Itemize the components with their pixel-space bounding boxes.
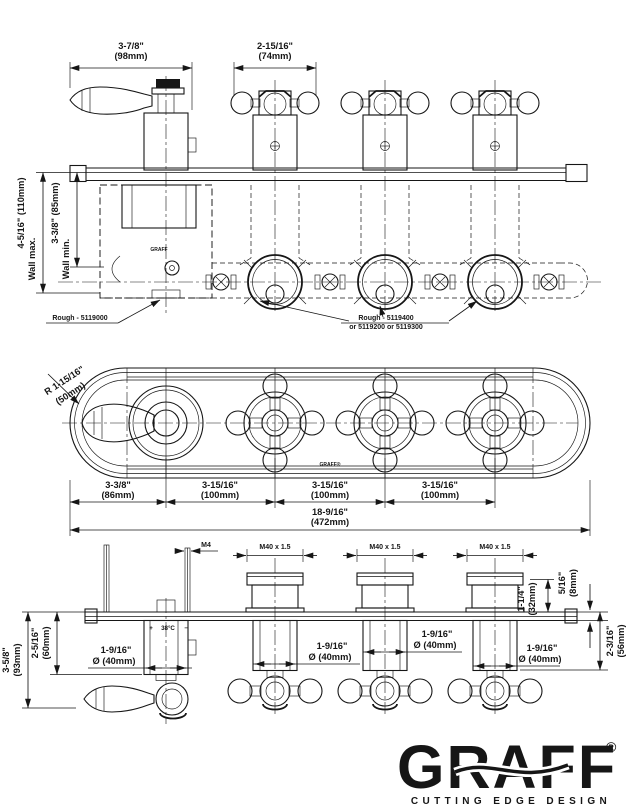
svg-text:Ø (40mm): Ø (40mm) — [414, 640, 457, 650]
svg-text:Ø (40mm): Ø (40mm) — [519, 654, 562, 664]
svg-text:1-9/16": 1-9/16" — [422, 629, 453, 639]
svg-text:(56mm): (56mm) — [616, 624, 626, 657]
plate-logo-text: GRAFF® — [320, 461, 341, 468]
thermostat-rough-body: GRAFF — [100, 185, 212, 298]
svg-text:Ø (40mm): Ø (40mm) — [93, 656, 136, 666]
svg-text:(100mm): (100mm) — [311, 490, 349, 500]
svg-text:Rough - 5119400: Rough - 5119400 — [358, 315, 413, 322]
svg-text:Wall min.: Wall min. — [61, 239, 71, 279]
svg-text:18-9/16": 18-9/16" — [312, 507, 348, 517]
front-view: GRAFF® R 1-15/16" (50mm) 3-3/8" — [43, 364, 590, 536]
top-view-wall-section: GRAFF 3-7/8" (98mm) 2-15/16" (74mm) 4-5/… — [16, 41, 602, 331]
svg-text:(60mm): (60mm) — [41, 626, 51, 659]
svg-text:2-5/16": 2-5/16" — [30, 628, 40, 659]
svg-text:(472mm): (472mm) — [311, 517, 349, 527]
registered-mark: ® — [606, 739, 617, 755]
svg-text:Ø (40mm): Ø (40mm) — [309, 652, 352, 662]
svg-text:1-9/16": 1-9/16" — [101, 645, 132, 655]
svg-text:(100mm): (100mm) — [421, 490, 459, 500]
svg-text:(98mm): (98mm) — [114, 51, 147, 61]
temp-value: 38°C — [161, 625, 175, 632]
thermostat-trim-bottom: + 38°C − — [84, 621, 196, 719]
svg-text:M40 x 1.5: M40 x 1.5 — [369, 544, 400, 551]
svg-text:M40 x 1.5: M40 x 1.5 — [479, 544, 510, 551]
svg-text:(32mm): (32mm) — [527, 582, 537, 615]
svg-text:Rough - 5119000: Rough - 5119000 — [52, 315, 107, 322]
svg-text:3-15/16": 3-15/16" — [422, 480, 458, 490]
svg-text:3-15/16": 3-15/16" — [202, 480, 238, 490]
svg-text:3-15/16": 3-15/16" — [312, 480, 348, 490]
svg-text:1-9/16": 1-9/16" — [527, 643, 558, 653]
svg-text:Wall max.: Wall max. — [27, 238, 37, 281]
svg-text:2-15/16": 2-15/16" — [257, 41, 293, 51]
callout-rough-right: Rough - 5119400 or 5119200 or 5119300 — [260, 301, 477, 331]
callout-rough-left: Rough - 5119000 — [46, 300, 160, 323]
brand-logo: GRAFF ® CUTTING EDGE DESIGN — [397, 733, 617, 807]
svg-text:1-1/4": 1-1/4" — [516, 586, 526, 612]
dim-stud-thread: M4 — [175, 542, 218, 551]
brand-tagline: CUTTING EDGE DESIGN — [411, 796, 611, 807]
svg-text:3-5/8": 3-5/8" — [1, 647, 11, 673]
svg-text:3-3/8": 3-3/8" — [105, 480, 131, 490]
svg-text:(74mm): (74mm) — [258, 51, 291, 61]
dim-volume2-escutcheon-dia: 1-9/16" Ø (40mm) — [363, 629, 462, 652]
svg-text:M4: M4 — [201, 542, 211, 549]
dim-wall-min: 3-3/8" (85mm) Wall min. — [50, 173, 104, 280]
dim-corner-radius: R 1-15/16" (50mm) — [43, 364, 87, 407]
temp-minus-mark: − — [184, 625, 188, 632]
svg-text:3-7/8": 3-7/8" — [118, 41, 144, 51]
mounting-studs — [104, 545, 190, 612]
dim-thermo-escutcheon-dia: 1-9/16" Ø (40mm) — [88, 645, 192, 668]
temp-plus-mark: + — [149, 625, 153, 632]
svg-text:M40 x 1.5: M40 x 1.5 — [259, 544, 290, 551]
rough-body-logo: GRAFF — [150, 247, 167, 253]
dim-volume1-escutcheon-dia: 1-9/16" Ø (40mm) — [253, 641, 360, 664]
rough-supply-pipes — [100, 263, 588, 298]
wall-plate-top-view — [70, 165, 587, 182]
svg-text:5/16": 5/16" — [557, 572, 567, 595]
bottom-view: M4 M40 x 1.5 M40 x 1.5 M40 x 1.5 — [1, 542, 626, 724]
svg-text:1-9/16": 1-9/16" — [317, 641, 348, 651]
svg-text:2-3/16": 2-3/16" — [605, 626, 615, 657]
technical-drawing-page: GRAFF 3-7/8" (98mm) 2-15/16" (74mm) 4-5/… — [0, 0, 643, 811]
svg-text:3-3/8" (85mm): 3-3/8" (85mm) — [50, 182, 60, 243]
svg-text:(93mm): (93mm) — [12, 643, 22, 676]
thermostat-lever-handle-top — [70, 79, 196, 170]
svg-text:or 5119200 or 5119300: or 5119200 or 5119300 — [349, 324, 423, 331]
svg-text:(8mm): (8mm) — [568, 569, 578, 597]
svg-text:4-5/16" (110mm): 4-5/16" (110mm) — [16, 177, 26, 248]
drawing-canvas: GRAFF 3-7/8" (98mm) 2-15/16" (74mm) 4-5/… — [0, 0, 643, 811]
dim-plate-total-width: 18-9/16" (472mm) — [70, 507, 590, 530]
svg-text:(86mm): (86mm) — [101, 490, 134, 500]
svg-text:(100mm): (100mm) — [201, 490, 239, 500]
